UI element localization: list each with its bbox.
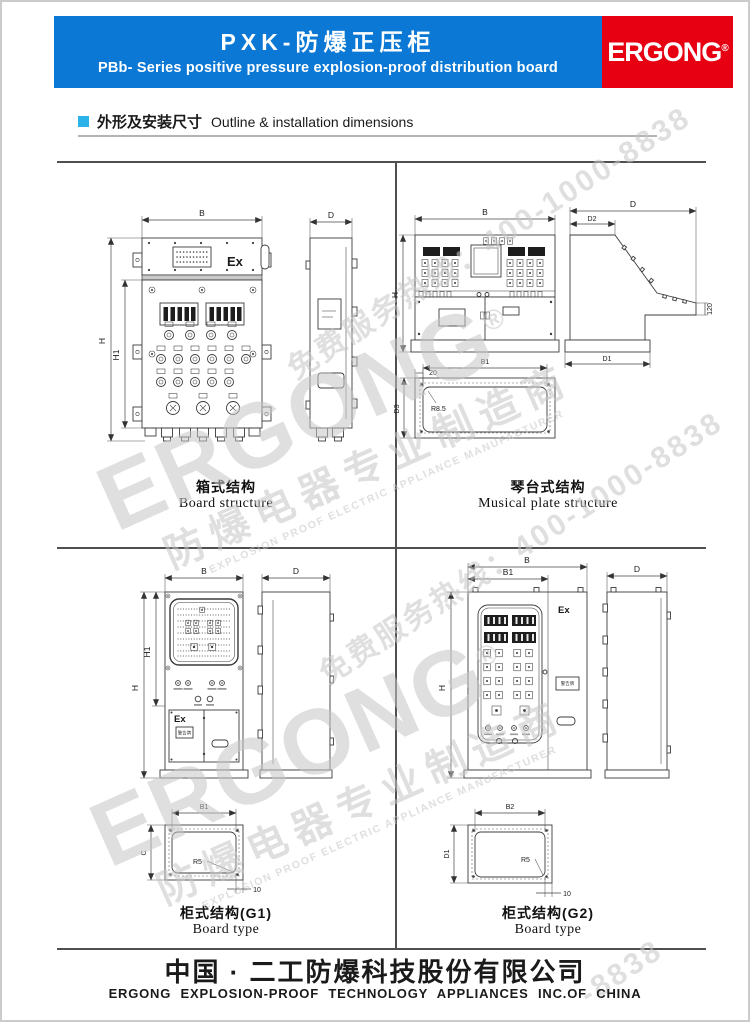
dim-b: B (142, 208, 262, 238)
dim-label-r85: R8.5 (431, 406, 446, 413)
caption-text: 柜式结构(G2) (502, 905, 594, 921)
header-banner: PXK-防爆正压柜 PBb- Series positive pressure … (54, 16, 602, 88)
dim-label-10: 10 (253, 887, 261, 894)
dim-h: H (437, 592, 468, 778)
caption-text: 琴台式结构 (511, 479, 586, 495)
footer-company-zh: 中国 · 二工防爆科技股份有限公司 (0, 952, 750, 989)
caption-text: Musical plate structure (478, 496, 618, 511)
caption-text: Board structure (179, 496, 273, 511)
dim-label-b1: B1 (503, 567, 514, 577)
dim-label-h1: H1 (111, 349, 121, 360)
dim-label-120: 120 (707, 303, 714, 315)
dim-label-h: H (437, 685, 447, 691)
ex-mark: Ex (558, 605, 570, 616)
g2-front-view: Ex 警告牌 (464, 588, 591, 779)
dim-label-b: B (524, 555, 530, 565)
dim-label-b1: B1 (200, 804, 209, 811)
caption-text: Board type (193, 922, 260, 937)
drawing-cabinet-g1: Ex 警告牌 B (57, 548, 395, 949)
dim-label-b1: B1 (481, 359, 490, 366)
footer-company-en: ERGONG EXPLOSION-PROOF TECHNOLOGY APPLIA… (0, 986, 750, 1001)
warning-plate-label: 警告牌 (561, 680, 575, 687)
caption-board-en: Board structure (57, 494, 395, 512)
dim-d: D (310, 210, 352, 238)
dim-d1: D1 (565, 352, 650, 368)
g1-plan-view (165, 825, 243, 880)
section-divider (78, 135, 657, 137)
section-title-en: Outline & installation dimensions (211, 114, 413, 130)
dim-b: B (165, 566, 243, 592)
dim-label-c: C (141, 850, 148, 855)
dim-b: B (468, 555, 587, 592)
dim-label-b: B (201, 566, 207, 576)
section-bullet-icon (78, 116, 89, 127)
caption-text: 柜式结构(G1) (180, 905, 272, 921)
caption-text: 箱式结构 (196, 479, 256, 495)
dim-label-d: D (293, 566, 299, 576)
registered-mark-icon: ® (721, 43, 727, 54)
dim-label-d: D (328, 210, 334, 220)
g1-side-view (258, 592, 334, 778)
page-title-en: PBb- Series positive pressure explosion-… (98, 60, 558, 76)
door-handle (261, 245, 269, 269)
g1-front-view: Ex 警告牌 (160, 592, 248, 778)
dim-d1: D1 (444, 825, 468, 883)
ex-mark: Ex (174, 714, 186, 725)
dim-label-d1: D1 (444, 849, 451, 858)
brand-logo: ERGONG® (607, 37, 727, 68)
dim-label-b: B (482, 207, 488, 217)
caption-g2-en: Board type (395, 920, 701, 938)
dim-label-h: H (97, 338, 107, 344)
dim-d2: D2 (570, 216, 615, 235)
dim-label-20: 20 (429, 370, 437, 377)
section-title-zh: 外形及安装尺寸 (97, 111, 202, 132)
section-header: 外形及安装尺寸 Outline & installation dimension… (78, 111, 413, 132)
dim-label-b2: B2 (506, 804, 515, 811)
dim-c: C (141, 825, 165, 880)
musical-front-view (411, 235, 559, 352)
caption-musical-en: Musical plate structure (395, 494, 701, 512)
page-title-zh: PXK-防爆正压柜 (221, 28, 436, 57)
dim-label-h: H (390, 292, 400, 298)
brand-logo-text: ERGONG (607, 37, 721, 67)
dim-120: 120 (696, 303, 714, 315)
board-side-view (306, 238, 357, 441)
brand-logo-block: ERGONG® (602, 16, 733, 88)
g2-side-view (603, 588, 671, 779)
dim-label-d2: D2 (588, 216, 597, 223)
catalog-page: PXK-防爆正压柜 PBb- Series positive pressure … (0, 0, 750, 1022)
board-front-view: Ex (133, 238, 271, 441)
dim-h: H (130, 592, 165, 778)
dim-label-d3: D3 (394, 404, 401, 413)
cable-glands (145, 428, 260, 441)
dim-label-h1: H1 (142, 646, 152, 657)
dim-label-r5: R5 (521, 857, 530, 864)
dim-b: B (415, 207, 555, 235)
dim-label-d1: D1 (603, 356, 612, 363)
dim-label-h: H (130, 685, 140, 691)
dim-d3: D3 (394, 378, 415, 438)
dim-label-10: 10 (563, 891, 571, 898)
dim-label-d: D (634, 564, 640, 574)
dim-h1: H1 (142, 592, 165, 706)
dim-d: D (262, 566, 330, 592)
musical-side-view (565, 235, 696, 352)
dim-label-d: D (630, 199, 636, 209)
dim-label-r5: R5 (193, 859, 202, 866)
caption-g1-en: Board type (57, 920, 395, 938)
caption-text: Board type (515, 922, 582, 937)
g2-plan-view (468, 825, 552, 883)
dim-label-b: B (199, 208, 205, 218)
drawing-cabinet-g2: Ex 警告牌 (395, 548, 701, 949)
warning-plate-label: 警告牌 (178, 730, 192, 737)
ex-mark: Ex (227, 254, 244, 269)
